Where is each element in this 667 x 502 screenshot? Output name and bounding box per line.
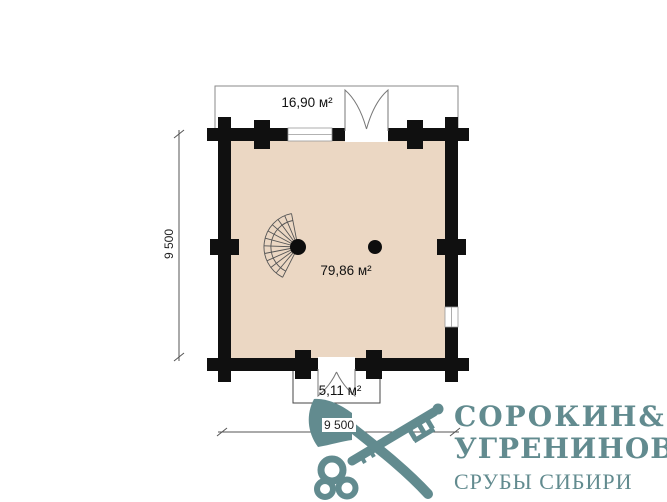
log-end bbox=[437, 239, 466, 255]
logo-name-line1: СОРОКИН & bbox=[454, 403, 652, 431]
logo-name-line2: УГРЕНИНОВ bbox=[454, 435, 652, 463]
log-end bbox=[254, 120, 270, 149]
window-top bbox=[288, 128, 332, 141]
logo-tagline: СРУБЫ СИБИРИ bbox=[454, 471, 652, 493]
stair-center-column bbox=[290, 239, 306, 255]
log-end bbox=[407, 120, 423, 149]
bottom-dimension-label: 9 500 bbox=[309, 418, 369, 432]
room-floor bbox=[224, 134, 452, 364]
support-column bbox=[368, 240, 382, 254]
axe-key-logo-icon bbox=[309, 399, 444, 497]
terrace-area-label: 16,90 м² bbox=[247, 96, 367, 110]
log-end bbox=[210, 239, 239, 255]
logo-ampersand: & bbox=[639, 403, 666, 431]
left-dimension-label: 9 500 bbox=[162, 214, 176, 274]
room-area-label: 79,86 м² bbox=[286, 264, 406, 278]
window-right bbox=[445, 307, 458, 327]
log-end bbox=[366, 350, 382, 379]
logo-text-block: СОРОКИН & УГРЕНИНОВ СРУБЫ СИБИРИ bbox=[454, 403, 652, 493]
floorplan-canvas: 16,90 м² 79,86 м² 5,11 м² 9 500 9 500 СО… bbox=[0, 0, 667, 502]
logo-name-part1: СОРОКИН bbox=[454, 403, 639, 431]
wall-top bbox=[207, 128, 469, 141]
porch-area-label: 5,11 м² bbox=[280, 384, 400, 398]
log-end bbox=[295, 350, 311, 379]
